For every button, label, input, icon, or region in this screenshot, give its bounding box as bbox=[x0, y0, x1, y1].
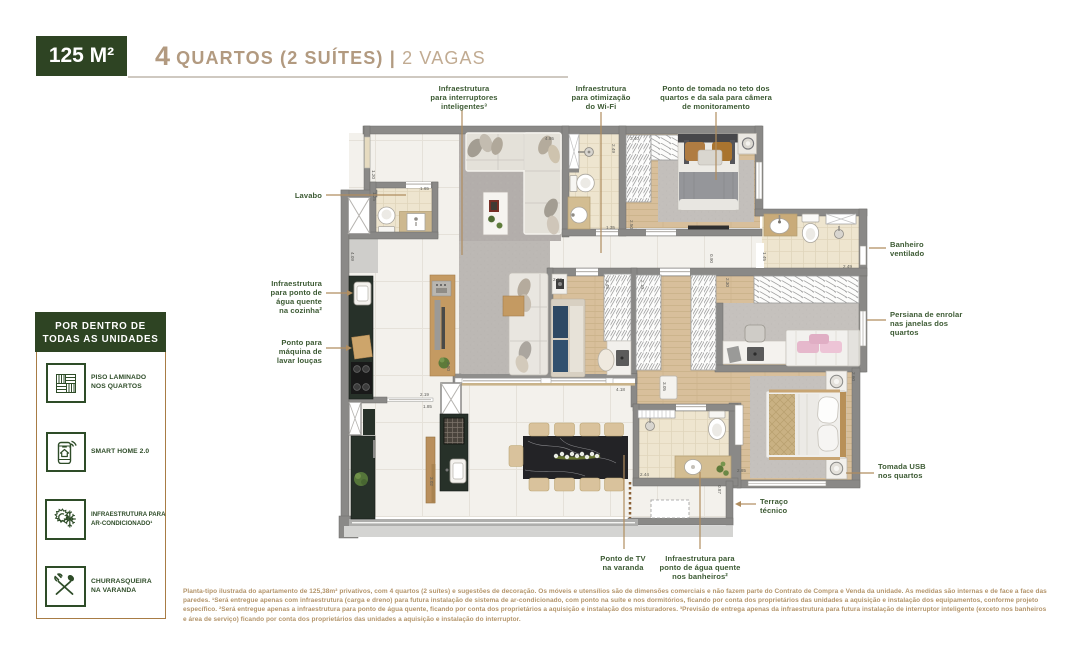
svg-text:2.60: 2.60 bbox=[851, 372, 856, 381]
svg-text:1.20: 1.20 bbox=[371, 170, 376, 179]
svg-text:1.25: 1.25 bbox=[372, 192, 377, 201]
svg-text:2.44: 2.44 bbox=[640, 472, 649, 477]
svg-text:3.05: 3.05 bbox=[662, 382, 667, 391]
svg-text:1.85: 1.85 bbox=[423, 404, 432, 409]
svg-text:2.50: 2.50 bbox=[629, 220, 634, 229]
svg-text:1.65: 1.65 bbox=[420, 186, 429, 191]
svg-text:1.45: 1.45 bbox=[762, 252, 767, 261]
svg-text:2.00: 2.00 bbox=[553, 277, 562, 282]
svg-text:3.40: 3.40 bbox=[630, 136, 639, 141]
svg-text:0.87: 0.87 bbox=[717, 485, 722, 494]
svg-text:2.45: 2.45 bbox=[605, 280, 610, 289]
svg-text:0.90: 0.90 bbox=[709, 254, 714, 263]
svg-text:4.95: 4.95 bbox=[545, 136, 554, 141]
svg-text:2.80: 2.80 bbox=[446, 362, 451, 371]
svg-text:2.49: 2.49 bbox=[843, 264, 852, 269]
svg-text:2.19: 2.19 bbox=[420, 392, 429, 397]
svg-text:2.10: 2.10 bbox=[640, 280, 645, 289]
svg-text:2.85: 2.85 bbox=[737, 468, 746, 473]
svg-text:1.35: 1.35 bbox=[606, 225, 615, 230]
svg-text:4.18: 4.18 bbox=[616, 387, 625, 392]
svg-text:4.09: 4.09 bbox=[350, 252, 355, 261]
svg-text:2.49: 2.49 bbox=[611, 144, 616, 153]
svg-text:2.30: 2.30 bbox=[725, 278, 730, 287]
svg-text:3.02: 3.02 bbox=[429, 477, 434, 486]
